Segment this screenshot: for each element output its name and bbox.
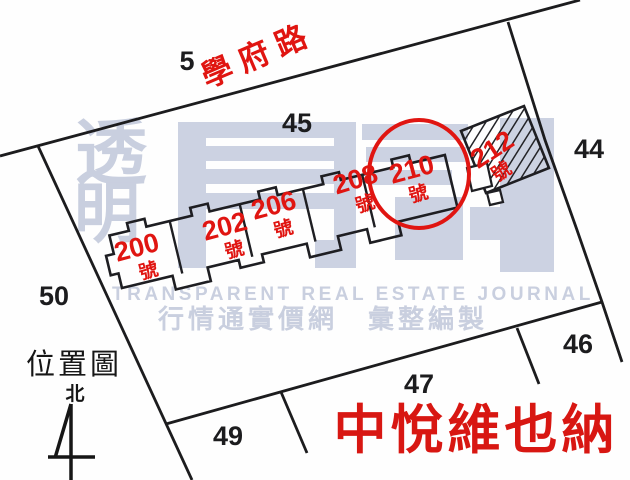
lot-label-45: 45: [282, 108, 312, 138]
lot-label-44: 44: [574, 134, 604, 164]
road-name-label: 學府路: [196, 15, 320, 94]
north-label: 北: [65, 383, 84, 405]
map-canvas: 透 明 TRANSPARENT REAL ESTATE JOURNAL 行情通實…: [0, 0, 630, 480]
watermark-block: [178, 122, 350, 138]
legend: 位置圖 北: [26, 348, 122, 480]
lot-label-49: 49: [213, 421, 243, 451]
location-map-title: 位置圖: [26, 348, 122, 381]
lot49-47-divider-line: [281, 392, 307, 453]
unit-202-number: 202: [199, 206, 250, 247]
lot-label-47: 47: [404, 369, 434, 399]
lot47-46-divider-line: [517, 328, 539, 384]
building-name-title: 中悅維也納: [334, 401, 619, 460]
location-map: 透 明 TRANSPARENT REAL ESTATE JOURNAL 行情通實…: [0, 0, 630, 480]
building-212-step: [487, 190, 503, 205]
watermark-block: [178, 122, 206, 268]
lot-label-50: 50: [39, 281, 69, 311]
north-arrow-icon: [48, 404, 95, 480]
lot-label-46: 46: [563, 329, 593, 359]
lot-label-5: 5: [179, 46, 194, 76]
watermark-tagline: 行情通實價網 彙整編製: [157, 304, 488, 334]
unit-206-number: 206: [248, 185, 299, 226]
watermark-block: [206, 146, 350, 161]
